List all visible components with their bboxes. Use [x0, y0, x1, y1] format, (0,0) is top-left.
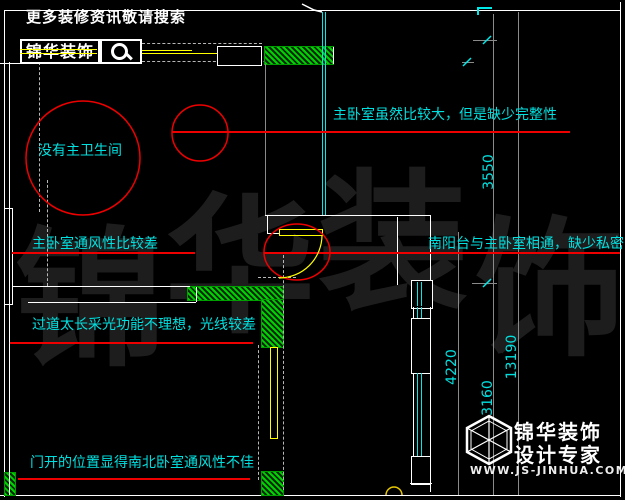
logo-underline [20, 49, 97, 50]
magnifier-icon [111, 43, 128, 60]
promo-text: 更多装修资讯敬请搜索 [26, 6, 186, 27]
annotation-ventilation-poor: 主卧室通风性比较差 [32, 236, 158, 253]
magnifier-handle [125, 53, 133, 61]
annotation-balcony-privacy: 南阳台与主卧室相通，缺少私密 [428, 236, 624, 253]
annotation-door-position: 门开的位置显得南北卧室通风性不佳 [30, 455, 254, 472]
bottom-door-arc [386, 487, 402, 495]
highlight-circle-small [172, 105, 228, 161]
dimension-label-4220: 4220 [444, 337, 460, 397]
footer-website-text: WWW.JS-JINHUA.COM [470, 464, 625, 477]
dimension-label-3550: 3550 [481, 142, 497, 202]
brand-logo-button[interactable]: 锦华装饰 [20, 39, 100, 64]
logo-underline [20, 53, 97, 54]
search-button[interactable] [100, 39, 142, 64]
cad-floorplan-canvas: 锦 华 装 饰 更多装修资讯敬请搜索 锦华装饰 [0, 0, 625, 500]
cube-wireframe-icon [462, 413, 516, 467]
dimension-label-13190: 13190 [504, 327, 520, 387]
annotation-no-master-bathroom: 没有主卫生间 [38, 143, 122, 160]
highlight-circle-door [264, 224, 330, 280]
door-swing-arc [279, 235, 322, 278]
wall-diagonal-dash [302, 4, 322, 12]
annotation-corridor-lighting: 过道太长采光功能不理想，光线较差 [32, 317, 256, 334]
annotation-master-bedroom-size: 主卧室虽然比较大，但是缺少完整性 [333, 107, 557, 124]
